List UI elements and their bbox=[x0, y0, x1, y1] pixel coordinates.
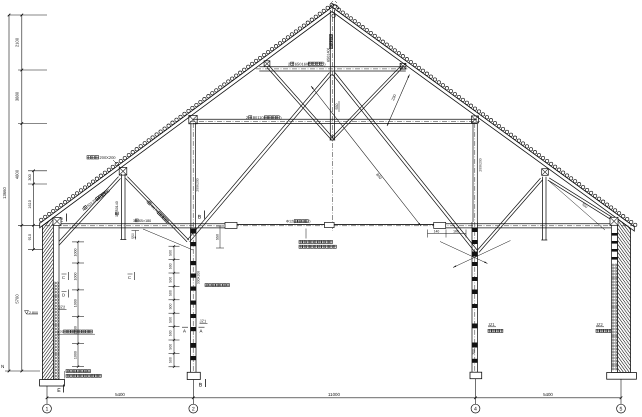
svg-text:11000: 11000 bbox=[328, 392, 340, 397]
svg-text:5700: 5700 bbox=[15, 294, 20, 304]
svg-text:500: 500 bbox=[168, 263, 172, 269]
svg-text:550: 550 bbox=[216, 234, 220, 240]
svg-text:50140: 50140 bbox=[115, 201, 119, 211]
svg-text:500: 500 bbox=[168, 304, 172, 310]
svg-text:300X300: 300X300 bbox=[196, 271, 200, 284]
svg-text:4800: 4800 bbox=[15, 169, 20, 179]
svg-text:JZ2: JZ2 bbox=[59, 305, 66, 310]
svg-text:JZ1: JZ1 bbox=[488, 322, 495, 327]
svg-text:200X200: 200X200 bbox=[196, 178, 200, 191]
svg-text:13660: 13660 bbox=[2, 187, 7, 199]
svg-text:500: 500 bbox=[168, 290, 172, 296]
svg-text:5400: 5400 bbox=[115, 392, 125, 397]
svg-text:500: 500 bbox=[168, 250, 172, 256]
svg-text:1: 1 bbox=[46, 406, 49, 412]
svg-text:500: 500 bbox=[168, 357, 172, 363]
svg-text:1000: 1000 bbox=[73, 351, 77, 359]
svg-text:Φ75: Φ75 bbox=[57, 330, 63, 334]
svg-text:4: 4 bbox=[474, 406, 477, 412]
svg-text:1: 1 bbox=[115, 215, 119, 217]
svg-text:2.800: 2.800 bbox=[29, 311, 38, 315]
svg-text:1610: 1610 bbox=[28, 200, 32, 208]
svg-text:5400: 5400 bbox=[543, 392, 553, 397]
svg-text:1000: 1000 bbox=[73, 299, 77, 307]
svg-text:65×180: 65×180 bbox=[139, 219, 151, 223]
svg-text:1000: 1000 bbox=[73, 273, 77, 281]
svg-text:180: 180 bbox=[453, 229, 459, 233]
svg-text:JZ1: JZ1 bbox=[200, 319, 207, 324]
svg-text:2: 2 bbox=[192, 406, 195, 412]
svg-text:B: B bbox=[199, 383, 203, 389]
svg-text:500: 500 bbox=[168, 344, 172, 350]
svg-text:3: 3 bbox=[133, 219, 135, 223]
svg-text:650140(: 650140( bbox=[326, 47, 330, 62]
svg-text:3880: 3880 bbox=[15, 91, 20, 101]
svg-text:Φ12(: Φ12( bbox=[286, 220, 295, 224]
svg-text:1000: 1000 bbox=[73, 326, 77, 334]
svg-text:550: 550 bbox=[131, 233, 135, 239]
svg-text:500: 500 bbox=[168, 317, 172, 323]
svg-text:JZ2: JZ2 bbox=[596, 322, 603, 327]
svg-text:5: 5 bbox=[620, 406, 623, 412]
svg-text:A: A bbox=[200, 329, 203, 334]
svg-text:C: C bbox=[62, 275, 65, 280]
svg-text:910: 910 bbox=[28, 234, 32, 240]
svg-text:300: 300 bbox=[471, 349, 475, 355]
svg-text:D: D bbox=[62, 293, 65, 298]
svg-text:300: 300 bbox=[28, 174, 32, 180]
svg-text:B: B bbox=[198, 214, 202, 220]
svg-text:N: N bbox=[1, 364, 4, 369]
svg-text:C: C bbox=[128, 275, 131, 280]
svg-text:1000: 1000 bbox=[73, 249, 77, 257]
svg-text:2100: 2100 bbox=[15, 37, 20, 47]
svg-text:550: 550 bbox=[335, 104, 339, 110]
svg-text:80110(: 80110( bbox=[253, 115, 266, 120]
svg-text:200X200: 200X200 bbox=[479, 158, 483, 171]
svg-text:500: 500 bbox=[168, 330, 172, 336]
svg-text:500: 500 bbox=[168, 277, 172, 283]
svg-text:140: 140 bbox=[434, 229, 440, 233]
svg-text:200X200: 200X200 bbox=[100, 155, 117, 160]
svg-text:A: A bbox=[183, 329, 186, 334]
svg-text:E: E bbox=[57, 388, 61, 394]
svg-text:650160(: 650160( bbox=[295, 61, 310, 66]
